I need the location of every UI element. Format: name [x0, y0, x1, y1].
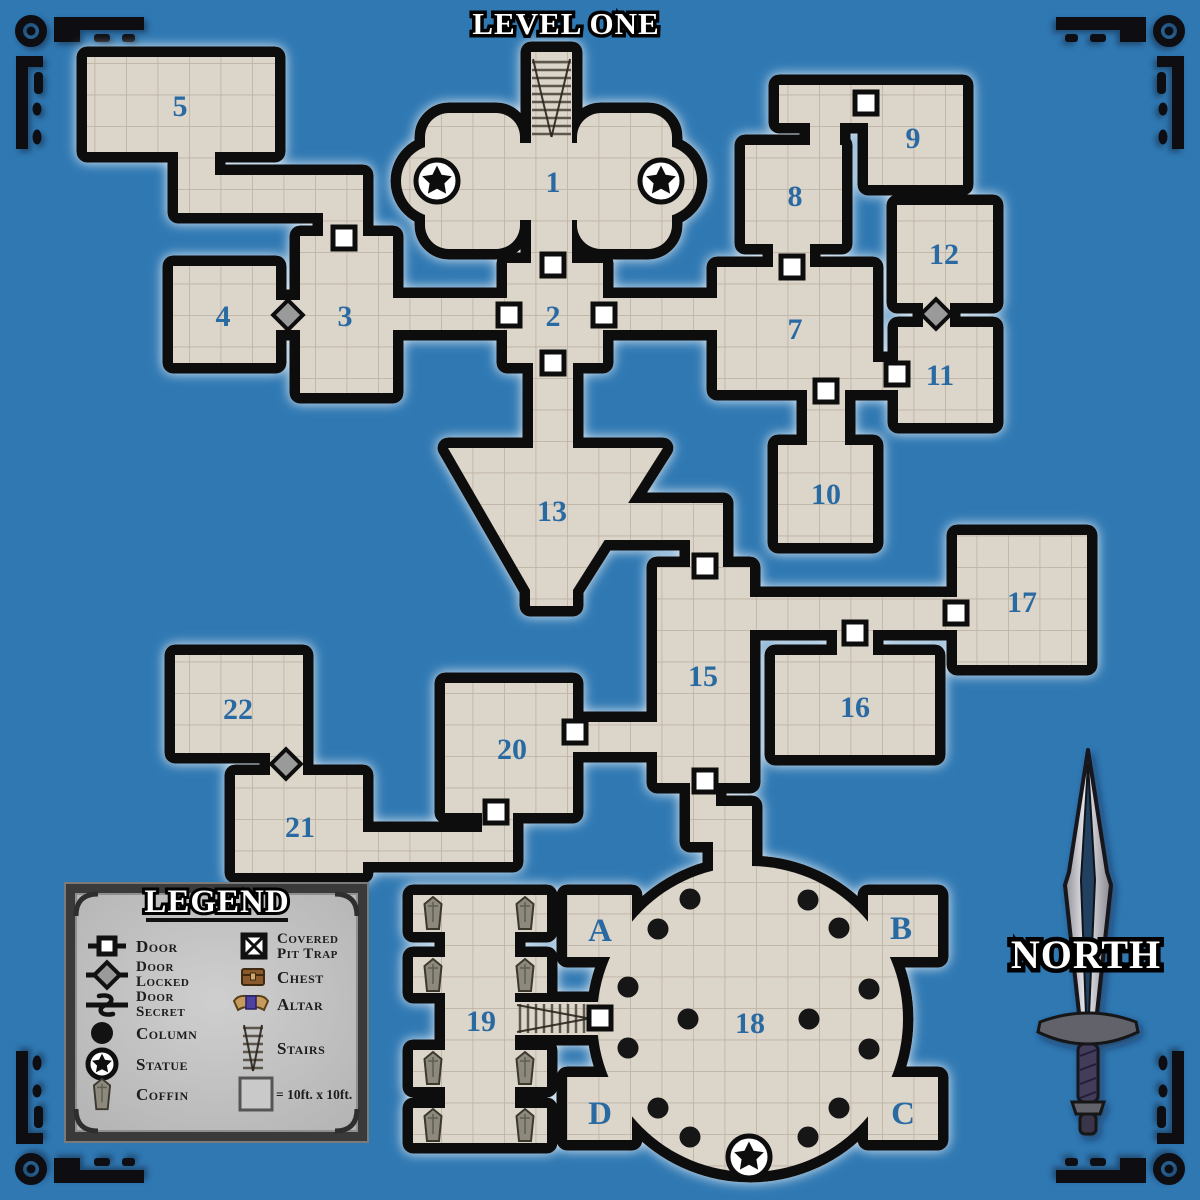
column-dot — [859, 979, 880, 1000]
legend-label-coffin: Coffin — [136, 1085, 189, 1104]
door-icon — [945, 602, 967, 624]
statue-icon — [88, 1050, 116, 1078]
legend-label-statue: Statue — [136, 1055, 188, 1074]
room-label-20: 20 — [497, 733, 527, 766]
room-label-13: 13 — [537, 495, 567, 528]
room-label-7: 7 — [788, 313, 803, 346]
column-dot — [798, 890, 819, 911]
coffin-icon — [425, 1052, 442, 1084]
door-icon — [855, 92, 877, 114]
room-label-17: 17 — [1007, 586, 1037, 619]
coffin-icon — [517, 897, 534, 929]
scale-square-icon — [240, 1078, 272, 1110]
sword-guard — [1038, 1013, 1138, 1044]
room-label-3: 3 — [338, 300, 353, 333]
statue-icon — [728, 1136, 770, 1178]
coffin-icon — [517, 1109, 534, 1141]
room-label-10: 10 — [811, 478, 841, 511]
room-label-4: 4 — [216, 300, 231, 333]
column-dot — [648, 1098, 669, 1119]
statue-icon — [640, 160, 682, 202]
legend-label-scale: = 10ft. x 10ft. — [276, 1087, 352, 1102]
door-icon — [781, 256, 803, 278]
altar-icon — [234, 996, 268, 1010]
column-dot — [859, 1039, 880, 1060]
room-label-19: 19 — [466, 1005, 496, 1038]
legend-label-altar: Altar — [277, 995, 323, 1014]
coffin-icon — [517, 1052, 534, 1084]
column-dot — [829, 1098, 850, 1119]
room-label-D: D — [588, 1096, 612, 1132]
legend-label-chest: Chest — [277, 968, 324, 987]
room-label-9: 9 — [906, 122, 921, 155]
door-icon — [694, 770, 716, 792]
chest-icon — [242, 969, 264, 985]
door-icon — [99, 938, 115, 954]
room-label-8: 8 — [788, 180, 803, 213]
room-label-A: A — [588, 913, 612, 949]
legend-title: LEGEND — [144, 884, 289, 920]
door-icon — [844, 622, 866, 644]
dungeon-map-canvas: 1 2 3 4 5 7 8 9 10 11 12 13 15 16 17 18 … — [0, 0, 1200, 1200]
column-dot — [678, 1009, 699, 1030]
room-label-15: 15 — [688, 660, 718, 693]
legend-panel: LEGEND Door DoorLocked DoorSecret Column… — [65, 883, 368, 1142]
column-dot — [618, 1038, 639, 1059]
legend-title-underline — [146, 918, 288, 922]
statue-icon — [416, 160, 458, 202]
dungeon-map-page: 1 2 3 4 5 7 8 9 10 11 12 13 15 16 17 18 … — [0, 0, 1200, 1200]
room-label-1: 1 — [546, 166, 561, 199]
door-icon — [815, 380, 837, 402]
legend-label-column: Column — [136, 1024, 197, 1043]
legend-label-pit-trap: CoveredPit Trap — [277, 931, 338, 962]
coffin-icon — [94, 1079, 110, 1109]
door-icon — [564, 721, 586, 743]
room-label-22: 22 — [223, 693, 253, 726]
sword-pommel — [1072, 1102, 1104, 1114]
door-icon — [886, 363, 908, 385]
door-icon — [589, 1007, 611, 1029]
room-label-16: 16 — [840, 691, 870, 724]
door-icon — [333, 227, 355, 249]
column-dot — [798, 1127, 819, 1148]
room-label-11: 11 — [926, 359, 954, 392]
door-icon — [498, 304, 520, 326]
room-label-5: 5 — [173, 90, 188, 123]
column-dot — [799, 1009, 820, 1030]
column-dot — [618, 977, 639, 998]
room-label-18: 18 — [735, 1007, 765, 1040]
coffin-icon — [517, 959, 534, 991]
column-dot — [680, 889, 701, 910]
map-title: LEVEL ONE — [472, 6, 659, 41]
door-icon — [542, 254, 564, 276]
coffin-icon — [425, 897, 442, 929]
room-label-21: 21 — [285, 811, 315, 844]
room-label-2: 2 — [546, 300, 561, 333]
room-label-B: B — [890, 911, 912, 947]
door-icon — [542, 352, 564, 374]
door-icon — [593, 304, 615, 326]
door-icon — [485, 801, 507, 823]
column-dot — [648, 919, 669, 940]
statue-icon — [88, 1050, 116, 1078]
column-icon — [91, 1022, 113, 1044]
column-dot — [829, 918, 850, 939]
legend-label-stairs: Stairs — [277, 1039, 325, 1058]
room-label-12: 12 — [929, 238, 959, 271]
coffin-icon — [425, 1109, 442, 1141]
door-icon — [694, 555, 716, 577]
coffin-icon — [425, 959, 442, 991]
legend-label-door: Door — [136, 937, 178, 956]
sword-pommel-knob — [1080, 1114, 1096, 1134]
room-label-C: C — [891, 1096, 915, 1132]
column-dot — [680, 1127, 701, 1148]
compass-label: NORTH — [1011, 932, 1161, 977]
coffin-icon — [94, 1079, 110, 1109]
